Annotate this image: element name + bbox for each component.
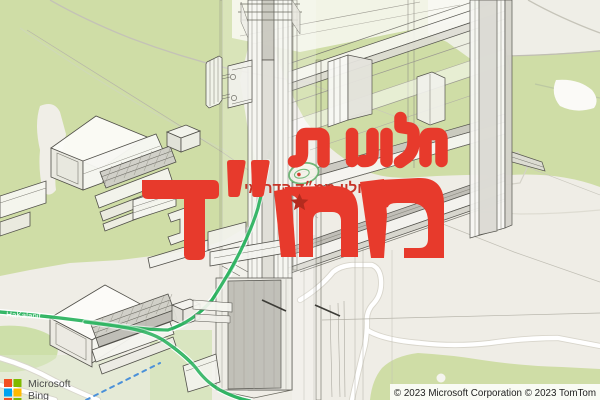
svg-text:Bing: Bing — [28, 390, 49, 400]
svg-text:Microsoft: Microsoft — [28, 378, 71, 390]
svg-text:© 2023 Microsoft Corporation ©: © 2023 Microsoft Corporation © 2023 TomT… — [394, 388, 596, 399]
